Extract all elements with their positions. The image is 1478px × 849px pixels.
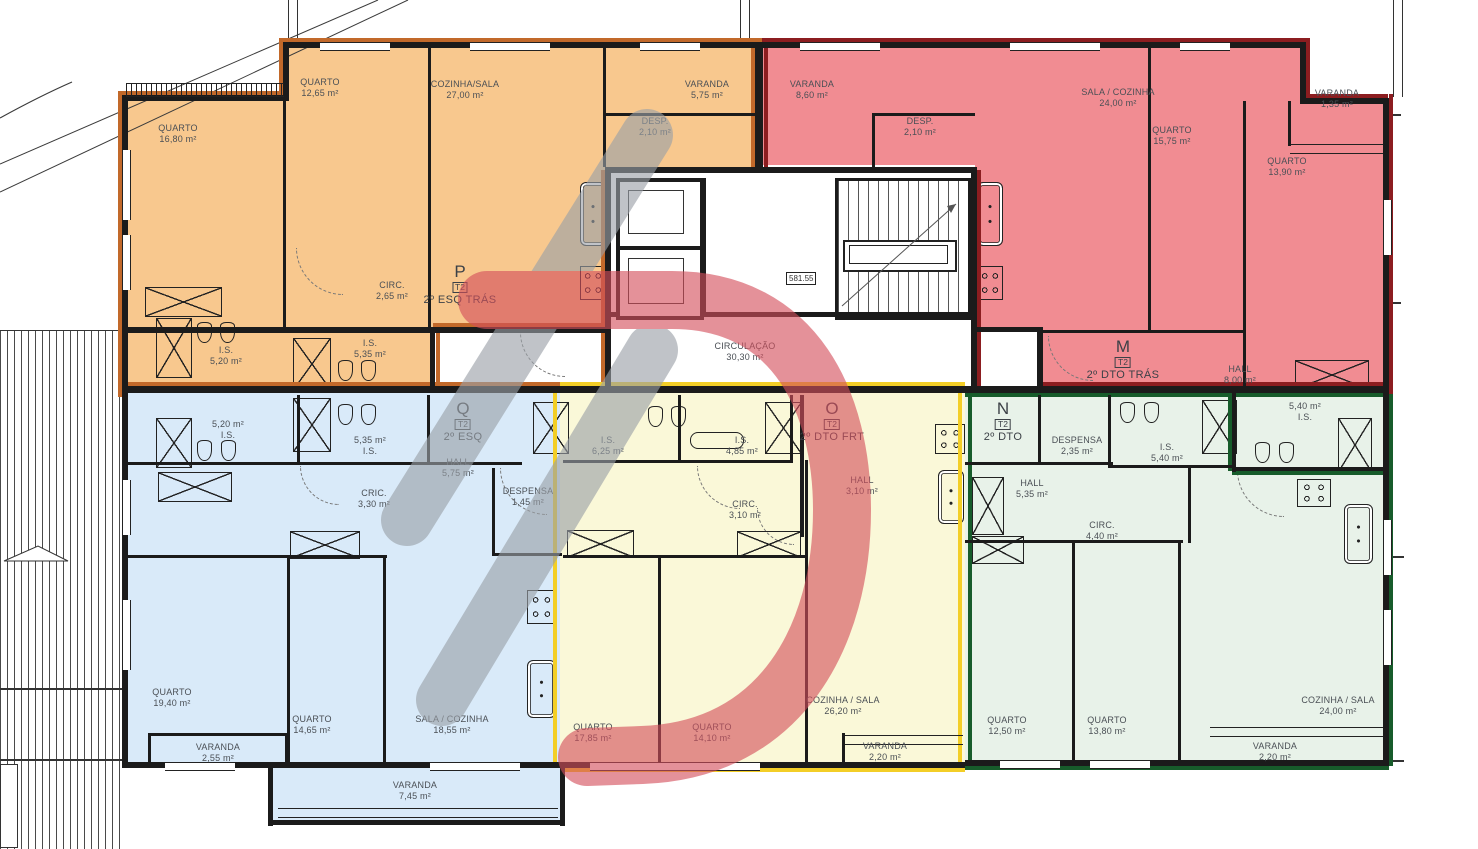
wall-segment (427, 395, 430, 462)
wall-segment (1383, 394, 1389, 766)
wall-segment (122, 386, 1389, 393)
wall-segment (383, 555, 386, 765)
window (320, 42, 390, 51)
wall-segment (148, 733, 288, 736)
room-label: QUARTO16,80 m² (158, 123, 197, 146)
elevator-car (628, 258, 684, 304)
wall-segment (755, 42, 763, 170)
window (1383, 200, 1392, 255)
room-label: HALL3,10 m² (846, 475, 878, 498)
balcony-railing (1290, 144, 1383, 154)
room-label: DESPENSA2,35 m² (1052, 435, 1103, 458)
apartment-type-badge: T2 (1115, 357, 1131, 368)
wall-segment (492, 468, 495, 555)
wall-segment (605, 167, 977, 173)
window (1000, 760, 1060, 769)
apartment-tag-M: M T2 2º DTO TRÁS (1087, 338, 1160, 381)
wall-segment (1188, 467, 1191, 543)
room-label: SALA / COZINHA24,00 m² (1081, 87, 1154, 110)
wall-segment (1300, 42, 1306, 102)
window (640, 42, 700, 51)
room-label: CIRC.3,10 m² (729, 499, 761, 522)
floor-plan-canvas: 581.55 P T2 2º ESQ TRÁS M T2 2º DTO TRÁS… (0, 0, 1478, 848)
wall-segment (122, 555, 387, 558)
room-label: I.S.5,20 m² (210, 345, 242, 368)
apartment-unit-label: 2º DTO (984, 431, 1023, 443)
window (1383, 520, 1392, 575)
room-label: QUARTO12,50 m² (987, 715, 1026, 738)
wall-segment (603, 48, 606, 167)
wall-segment (122, 389, 128, 768)
wall-segment (678, 395, 681, 462)
wall-segment (122, 327, 611, 333)
wall-segment (1038, 395, 1041, 462)
wall-segment (1232, 467, 1385, 471)
wall-segment (283, 42, 1306, 48)
room-label: HALL5,75 m² (442, 457, 474, 480)
apartment-tag-O: O T2 2º DTO FRT (800, 400, 864, 443)
wall-segment (1043, 330, 1243, 333)
wall-segment (1108, 395, 1111, 467)
window (1180, 42, 1230, 51)
room-label: COZINHA/SALA27,00 m² (431, 79, 499, 102)
wall-segment (563, 555, 805, 558)
room-label: DESP.2,10 m² (639, 116, 671, 139)
room-label: DESPENSA1,45 m² (503, 486, 554, 509)
room-label: I.S.5,40 m² (1151, 442, 1183, 465)
room-label: HALL8,00 m² (1224, 364, 1256, 387)
wall-segment (658, 557, 661, 765)
apartment-type-badge: T2 (455, 419, 471, 430)
apartment-tag-Q: Q T2 2º ESQ (444, 400, 483, 443)
wall-segment (430, 333, 435, 389)
window (590, 762, 690, 771)
room-label: VARANDA1,35 m² (1315, 88, 1359, 111)
room-label: COZINHA / SALA26,20 m² (806, 695, 879, 718)
apartment-unit-label: 2º ESQ TRÁS (423, 294, 496, 306)
room-label: DESP.2,10 m² (904, 116, 936, 139)
room-label: CRIC.3,30 m² (358, 488, 390, 511)
window (800, 42, 880, 51)
room-label: QUARTO19,40 m² (152, 687, 191, 710)
room-label: QUARTO13,90 m² (1267, 156, 1306, 179)
apartment-unit-label: 2º ESQ (444, 431, 483, 443)
window (122, 150, 131, 220)
window (122, 480, 131, 535)
wall-segment (971, 167, 977, 392)
apartment-unit-label: 2º DTO FRT (800, 431, 864, 443)
wall-segment (563, 460, 793, 463)
wall-segment (1288, 101, 1291, 146)
apartment-tag-N: N T2 2º DTO (984, 400, 1023, 443)
apartment-code: N (997, 400, 1009, 417)
room-label: I.S.4,85 m² (726, 435, 758, 458)
balcony-railing (278, 808, 558, 818)
wall-segment (872, 113, 875, 170)
wall-segment (805, 460, 808, 765)
wall-segment (605, 113, 762, 116)
room-label: VARANDA7,45 m² (393, 780, 437, 803)
wall-segment (977, 327, 1043, 332)
circulation-label: CIRCULAÇÃO30,30 m² (714, 341, 775, 364)
room-label: I.S.6,25 m² (592, 435, 624, 458)
room-label: I.S.5,35 m² (354, 338, 386, 361)
window (122, 600, 131, 670)
apartment-type-badge: T2 (824, 419, 840, 430)
wall-segment (1072, 543, 1075, 763)
room-label: QUARTO14,65 m² (292, 714, 331, 737)
apartment-type-badge: T2 (995, 419, 1011, 430)
apartment-code: M (1116, 338, 1130, 355)
room-label: VARANDA2,20 m² (1253, 741, 1297, 764)
stair-level-label: 581.55 (786, 272, 816, 285)
room-label: QUARTO14,10 m² (692, 722, 731, 745)
room-label: QUARTO15,75 m² (1152, 125, 1191, 148)
wall-segment (965, 462, 1113, 465)
room-label: COZINHA / SALA24,00 m² (1301, 695, 1374, 718)
wall-segment (1108, 465, 1233, 468)
wall-segment (560, 768, 565, 826)
wall-segment (1178, 543, 1181, 763)
apartment-code: Q (456, 400, 469, 417)
balcony-railing (126, 83, 284, 97)
window (1090, 760, 1150, 769)
apartment-tag-P: P T2 2º ESQ TRÁS (423, 263, 496, 306)
room-label: VARANDA5,75 m² (685, 79, 729, 102)
wall-segment (790, 395, 793, 462)
wall-segment (285, 733, 288, 765)
wall-segment (148, 733, 151, 765)
room-label: I.S.5,40 m² (1289, 401, 1321, 424)
room-label: I.S.5,35 m² (354, 435, 386, 458)
window (1010, 42, 1100, 51)
apartment-unit-label: 2º DTO TRÁS (1087, 369, 1160, 381)
room-label: VARANDA2,20 m² (863, 741, 907, 764)
window (470, 42, 550, 51)
apartment-code: O (825, 400, 838, 417)
window (690, 762, 760, 771)
wall-segment (1037, 330, 1043, 392)
wall-segment (1232, 392, 1236, 472)
balcony-railing (1210, 727, 1383, 737)
window (430, 762, 520, 771)
room-label: QUARTO17,85 m² (573, 722, 612, 745)
wall-segment (283, 101, 286, 327)
wall-segment (268, 820, 565, 825)
apartment-type-badge: T2 (452, 282, 468, 293)
wall-segment (492, 553, 562, 556)
window (122, 235, 131, 290)
wall-segment (268, 768, 273, 826)
wall-segment (297, 395, 300, 462)
room-label: CIRC.4,40 m² (1086, 520, 1118, 543)
room-label: CIRC.2,65 m² (376, 280, 408, 303)
elevator-car (628, 190, 684, 234)
room-label: VARANDA2,55 m² (196, 742, 240, 765)
window (1383, 610, 1392, 665)
room-label: I.S.5,20 m² (212, 419, 244, 442)
room-label: VARANDA8,60 m² (790, 79, 834, 102)
apartment-code: P (454, 263, 465, 280)
room-label: SALA / COZINHA18,55 m² (415, 714, 488, 737)
room-label: QUARTO13,80 m² (1087, 715, 1126, 738)
room-label: QUARTO12,65 m² (300, 77, 339, 100)
wall-segment (1243, 101, 1246, 386)
wall-segment (605, 167, 611, 392)
room-label: HALL5,35 m² (1016, 478, 1048, 501)
